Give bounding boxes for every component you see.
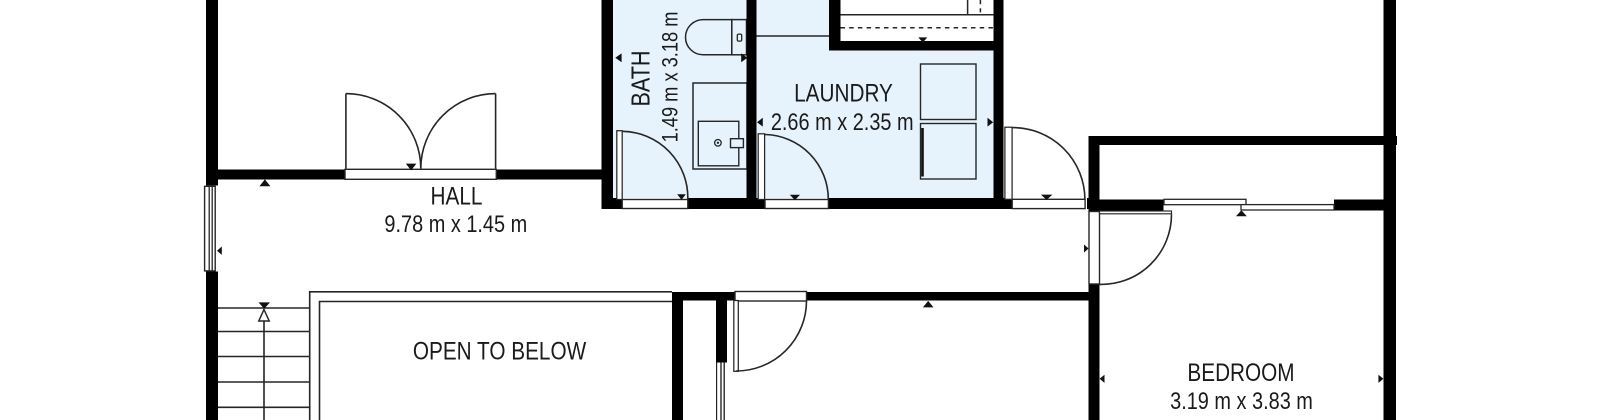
svg-text:OPEN TO BELOW: OPEN TO BELOW [413,337,587,365]
svg-text:HALL: HALL [431,181,483,209]
svg-text:3.19 m x 3.83 m: 3.19 m x 3.83 m [1170,387,1313,414]
svg-text:BATH: BATH [627,51,656,107]
svg-text:2.66 m x 2.35 m: 2.66 m x 2.35 m [771,108,914,135]
svg-text:LAUNDRY: LAUNDRY [794,78,893,106]
svg-text:1.49 m x 3.18 m: 1.49 m x 3.18 m [659,12,683,143]
svg-text:BEDROOM: BEDROOM [1187,358,1294,386]
svg-text:9.78 m x 1.45 m: 9.78 m x 1.45 m [384,210,527,237]
